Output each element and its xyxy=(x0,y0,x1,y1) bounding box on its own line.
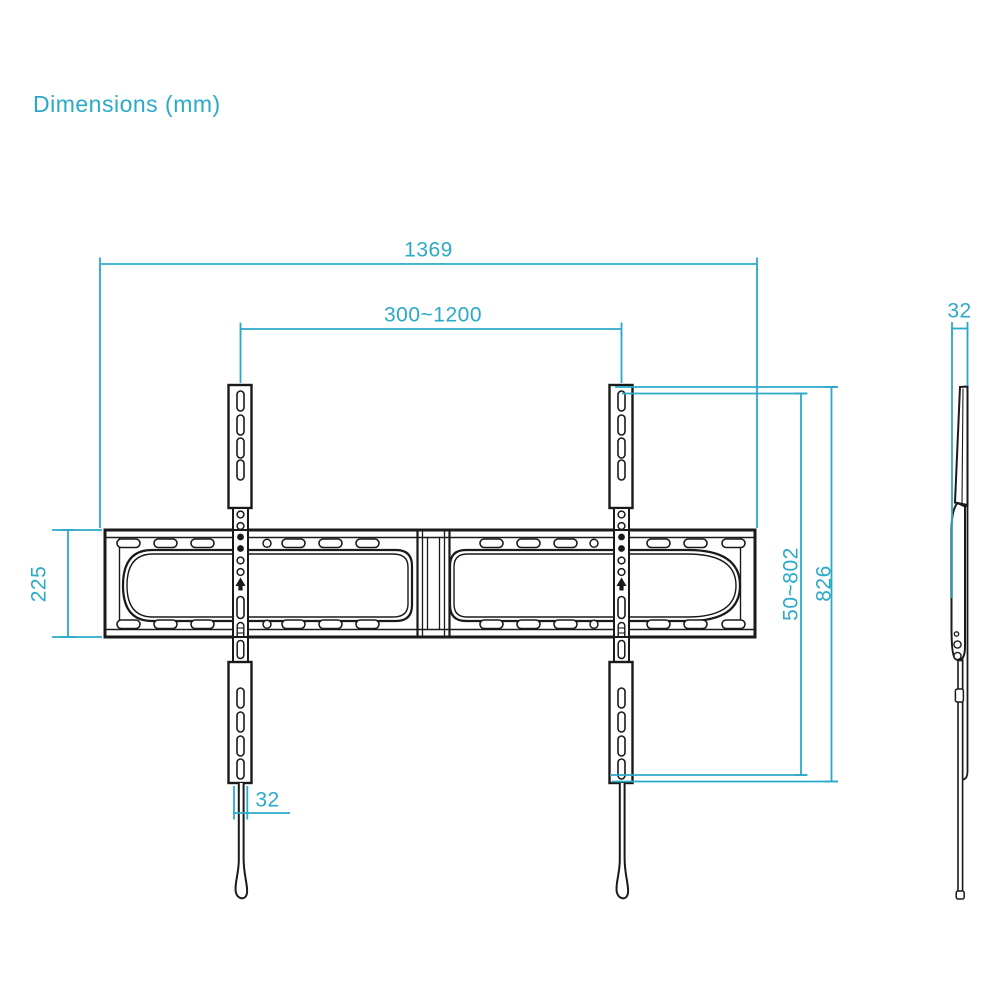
dimensions-diagram: Dimensions (mm) xyxy=(0,0,1000,1000)
dimension-plate-height: 225 xyxy=(28,530,103,637)
dim-label-plate-height: 225 xyxy=(28,566,51,603)
vertical-rail-right xyxy=(610,385,633,898)
vertical-rail-left xyxy=(229,385,252,898)
dimension-rail-span: 300~1200 xyxy=(241,304,622,384)
front-view xyxy=(105,385,755,898)
page-title: Dimensions (mm) xyxy=(33,91,221,117)
drawing-canvas: Dimensions (mm) xyxy=(0,0,1000,1000)
dim-label-rail-span: 300~1200 xyxy=(384,304,482,327)
wall-plate-bar xyxy=(105,530,755,637)
dim-label-height-adjust-range: 50~802 xyxy=(780,547,803,621)
dim-label-total-width: 1369 xyxy=(404,239,453,262)
dim-label-side-depth: 32 xyxy=(947,300,971,323)
dim-label-rail-width: 32 xyxy=(255,789,279,812)
side-view xyxy=(952,387,968,900)
dim-label-rail-height: 826 xyxy=(813,565,836,602)
dimension-total-width: 1369 xyxy=(100,239,757,529)
